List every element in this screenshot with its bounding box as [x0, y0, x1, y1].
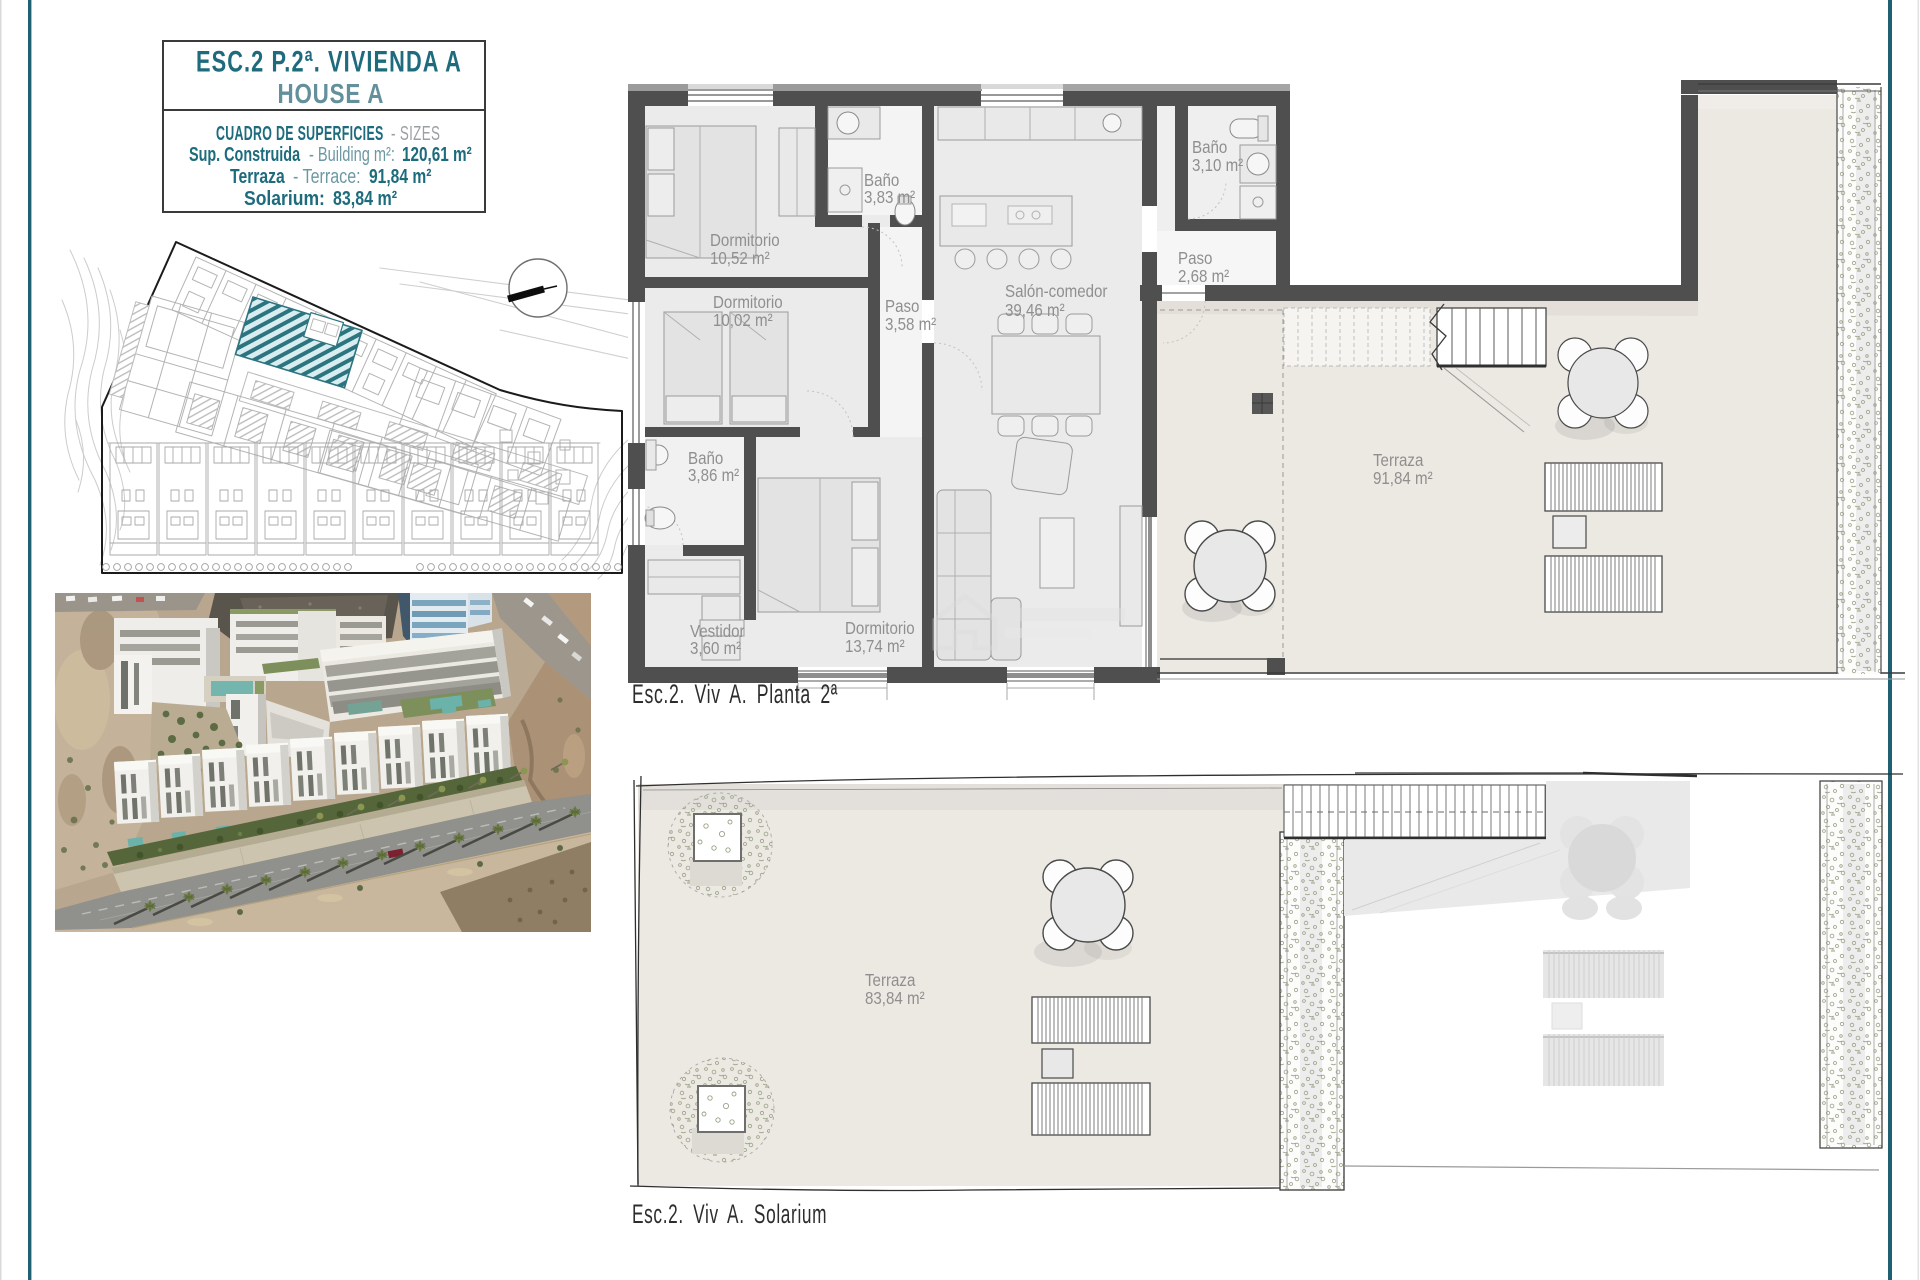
svg-text:120,61 m²: 120,61 m² — [402, 143, 472, 165]
svg-text:2,68 m²: 2,68 m² — [1178, 266, 1230, 287]
svg-text:3,86 m²: 3,86 m² — [688, 465, 740, 486]
svg-text:3,58 m²: 3,58 m² — [885, 314, 937, 335]
svg-text:Solarium:: Solarium: — [244, 187, 325, 209]
svg-text:10,52 m²: 10,52 m² — [710, 248, 770, 269]
svg-text:Esc.2. Viv A. Planta 2ª: Esc.2. Viv A. Planta 2ª — [632, 678, 838, 709]
svg-text:10,02 m²: 10,02 m² — [713, 310, 773, 331]
svg-text:91,84 m²: 91,84 m² — [1373, 468, 1433, 489]
svg-text:3,10 m²: 3,10 m² — [1192, 155, 1244, 176]
svg-text:Sup. Construida: Sup. Construida — [189, 143, 300, 166]
svg-text:Salón-comedor: Salón-comedor — [1005, 281, 1108, 302]
svg-text:3,83 m²: 3,83 m² — [864, 187, 916, 208]
svg-text:- Building m²:: - Building m²: — [309, 143, 395, 166]
svg-text:- SIZES: - SIZES — [391, 122, 440, 144]
svg-text:ESC.2 P.2ª. VIVIENDA A: ESC.2 P.2ª. VIVIENDA A — [196, 44, 462, 78]
svg-text:- Terrace:: - Terrace: — [293, 165, 361, 187]
svg-text:83,84 m²: 83,84 m² — [865, 988, 925, 1009]
svg-text:83,84 m²: 83,84 m² — [333, 187, 397, 209]
svg-text:Terraza: Terraza — [230, 165, 286, 187]
svg-text:Esc.2. Viv A. Solarium: Esc.2. Viv A. Solarium — [632, 1198, 827, 1229]
svg-text:13,74 m²: 13,74 m² — [845, 636, 905, 657]
svg-text:3,60 m²: 3,60 m² — [690, 638, 742, 659]
svg-text:91,84 m²: 91,84 m² — [369, 165, 431, 187]
svg-text:39,46 m²: 39,46 m² — [1005, 300, 1065, 321]
svg-text:CUADRO DE SUPERFICIES: CUADRO DE SUPERFICIES — [216, 122, 384, 145]
svg-text:HOUSE A: HOUSE A — [278, 79, 385, 110]
